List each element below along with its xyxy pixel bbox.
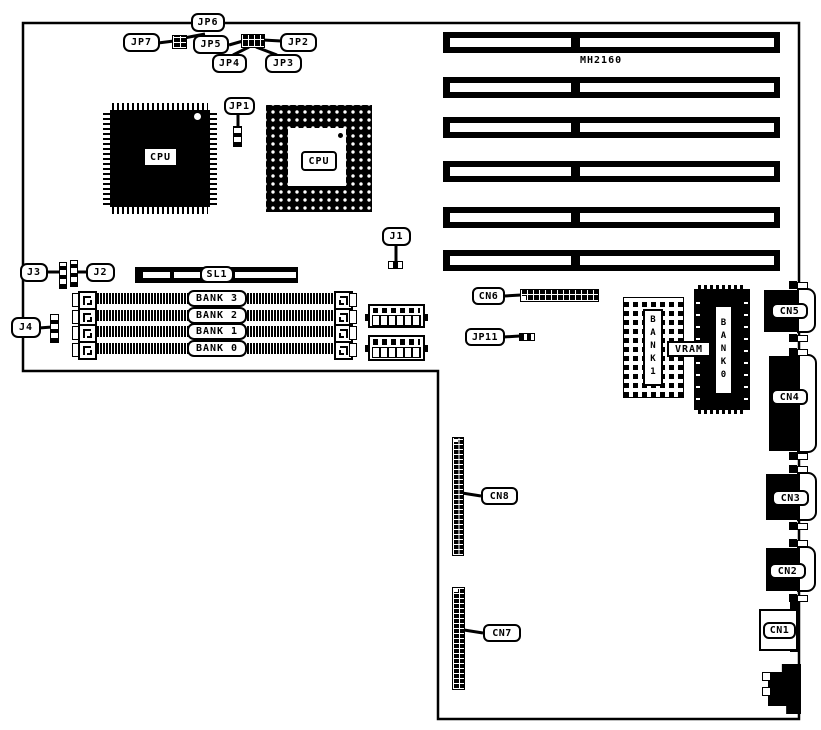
power-connector [368, 335, 425, 361]
vram-bank0-chip-pins-bottom [698, 410, 746, 414]
callout-cn3: CN3 [772, 490, 809, 506]
simm-end [349, 310, 357, 324]
callout-bank3: BANK 3 [187, 290, 247, 307]
power-connector-tab [365, 314, 369, 321]
cn6-header [520, 289, 599, 302]
vram-bank0-label: BANK0 [714, 305, 733, 395]
callout-cn5: CN5 [771, 303, 808, 319]
power-connector-pins [373, 308, 420, 313]
bracket-tab [797, 466, 808, 473]
power-connector [368, 304, 425, 328]
bracket-tab [789, 281, 797, 289]
callout-j4: J4 [11, 317, 41, 338]
bracket-tab [797, 335, 808, 342]
callout-cn6: CN6 [472, 287, 505, 305]
bracket-tab [789, 348, 797, 356]
isa-slot [443, 117, 780, 138]
callout-cn2: CN2 [769, 563, 806, 579]
power-connector-tab [424, 314, 428, 321]
sl1-slot-key [174, 272, 200, 278]
callout-j1: J1 [382, 227, 411, 246]
bracket-tab [789, 452, 797, 460]
j2-jumper [70, 260, 78, 287]
bracket-tab [797, 453, 808, 460]
qfp-cpu-pins-left [103, 112, 110, 205]
callout-cn4: CN4 [771, 389, 808, 405]
isa-slot [443, 207, 780, 228]
power-connector-pins [373, 339, 420, 345]
jp1-jumper [233, 126, 242, 147]
callout-jp4: JP4 [212, 54, 247, 73]
callout-sl1: SL1 [200, 266, 234, 283]
pga-cpu-label: CPU [301, 151, 337, 171]
simm-cap [78, 341, 97, 360]
callout-jp11: JP11 [465, 328, 505, 346]
jumper-block-jp5-jp7 [172, 35, 187, 49]
bracket-tab [797, 540, 808, 547]
qfp-cpu-pins-bottom [112, 207, 208, 214]
callout-bank1: BANK 1 [187, 323, 247, 340]
j4-jumper [50, 314, 59, 343]
callout-j2: J2 [86, 263, 115, 282]
j3-jumper [59, 262, 67, 289]
qfp-cpu-pins-top [112, 103, 208, 110]
bracket-tab [789, 465, 797, 473]
callout-bank0: BANK 0 [187, 340, 247, 357]
bracket-tab [797, 349, 808, 356]
callout-jp1: JP1 [224, 97, 255, 115]
motherboard-diagram: JP6 JP7 JP5 JP2 JP4 JP3 CPU CPU JP1 J1 M… [0, 0, 821, 730]
callout-bank2: BANK 2 [187, 307, 247, 324]
j1-jumper [388, 261, 403, 269]
cn8-header [452, 437, 464, 556]
cn6-key-pin [522, 296, 526, 300]
bracket-tab [789, 539, 797, 547]
simm-end [349, 343, 357, 357]
simm-end [349, 293, 357, 307]
simm-end [349, 326, 357, 340]
vram-label: VRAM [667, 341, 711, 357]
cn7-key-pin [454, 589, 458, 592]
vram-bank1-label: BANK1 [643, 309, 663, 386]
bracket-tab [797, 595, 808, 602]
qfp-cpu-pins-right [210, 112, 217, 205]
jp11-jumper [519, 333, 535, 341]
cn8-key-pin [454, 439, 458, 442]
keyboard-din-pin [762, 672, 771, 681]
bracket-tab [797, 282, 808, 289]
callout-jp6: JP6 [191, 13, 225, 32]
sl1-slot-key [235, 272, 296, 278]
qfp-cpu-label: CPU [145, 149, 176, 165]
bracket-tab [789, 522, 797, 530]
jumper-block-jp2-jp4 [241, 34, 265, 48]
callout-cn7: CN7 [483, 624, 521, 642]
callout-j3: J3 [20, 263, 48, 282]
power-connector-tab [365, 345, 369, 352]
vram-bank0-chip-pins-top [698, 285, 746, 289]
cn7-header [452, 587, 465, 690]
power-connector-tab [424, 345, 428, 352]
pga-cpu-pin1-dot [338, 133, 343, 138]
isa-slot [443, 161, 780, 182]
callout-jp7: JP7 [123, 33, 160, 52]
vram-bank0-chip-pins-right [744, 299, 748, 400]
keyboard-din-pin [762, 687, 771, 696]
bracket-tab [797, 523, 808, 530]
qfp-cpu-pin1-dot [194, 113, 201, 120]
callout-jp5: JP5 [193, 35, 229, 54]
callout-cn1: CN1 [763, 622, 796, 639]
power-connector-sockets [372, 347, 421, 358]
power-connector-sockets [372, 315, 421, 326]
bracket-tab [789, 334, 797, 342]
isa-slot [443, 77, 780, 98]
callout-jp2: JP2 [280, 33, 317, 52]
bracket-tab [789, 594, 797, 602]
isa-slot [443, 32, 780, 53]
board-part-number: MH2160 [580, 55, 622, 66]
callout-jp3: JP3 [265, 54, 302, 73]
callout-cn8: CN8 [481, 487, 518, 505]
sl1-slot-key [143, 272, 170, 278]
isa-slot [443, 250, 780, 271]
